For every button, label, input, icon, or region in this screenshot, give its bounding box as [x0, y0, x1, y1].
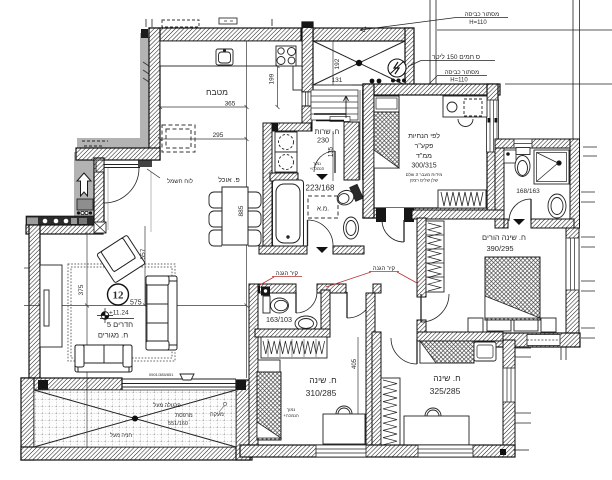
svg-text:885: 885 — [238, 205, 245, 216]
svg-text:ח. מגורים: ח. מגורים — [98, 331, 128, 340]
svg-text:551/160: 551/160 — [168, 421, 188, 427]
svg-text:מידות מעבר 3 שלם: מידות מעבר 3 שלם — [406, 172, 443, 177]
svg-text:199: 199 — [269, 73, 276, 84]
svg-text:מ.א.: מ.א. — [317, 206, 329, 213]
svg-text:נמוך: נמוך — [287, 407, 296, 412]
svg-text:מטבח: מטבח — [206, 87, 228, 97]
svg-text:223/168: 223/168 — [306, 184, 335, 193]
svg-text:300/315: 300/315 — [411, 163, 436, 170]
svg-text:+11.24: +11.24 — [109, 310, 129, 317]
svg-text:163/103: 163/103 — [266, 315, 292, 324]
svg-text:חדרים 5: חדרים 5 — [107, 320, 133, 329]
svg-text:+הנמכה: +הנמכה — [310, 166, 325, 171]
svg-text:230: 230 — [317, 136, 329, 145]
svg-text:פ. אוכל: פ. אוכל — [218, 176, 240, 184]
svg-text:לפי הנחיות: לפי הנחיות — [408, 132, 440, 140]
svg-text:192: 192 — [334, 58, 341, 69]
svg-text:295: 295 — [213, 132, 224, 139]
svg-text:מסתור כביסה: מסתור כביסה — [465, 12, 499, 18]
svg-text:פקע"ר: פקע"ר — [415, 143, 434, 150]
svg-text:365: 365 — [225, 101, 236, 108]
svg-text:ח. שינה הורים: ח. שינה הורים — [482, 233, 526, 242]
svg-text:ח. שינה: ח. שינה — [309, 375, 336, 385]
svg-text:12: 12 — [113, 290, 125, 302]
svg-text:310/285: 310/285 — [306, 388, 337, 398]
svg-text:557: 557 — [140, 248, 147, 259]
svg-text:575: 575 — [130, 300, 142, 307]
svg-text:375: 375 — [78, 284, 85, 295]
svg-text:מרפסת: מרפסת — [175, 413, 192, 419]
svg-text:ח. שינה: ח. שינה — [433, 373, 460, 383]
svg-text:H=110: H=110 — [450, 78, 468, 84]
svg-text:168/163: 168/163 — [516, 188, 540, 195]
svg-text:מסתור כביסה: מסתור כביסה — [445, 70, 479, 76]
svg-text:פרגולה מעל: פרגולה מעל — [153, 402, 181, 409]
svg-text:0501/385/851: 0501/385/851 — [149, 372, 174, 377]
svg-text:H=110: H=110 — [469, 20, 487, 26]
svg-text:390/295: 390/295 — [486, 244, 513, 253]
svg-text:לוח חשמל: לוח חשמל — [167, 177, 193, 185]
svg-text:325/285: 325/285 — [430, 386, 461, 396]
svg-text:שלן שלים רצפן: שלן שלים רצפן — [410, 178, 439, 183]
svg-text:+הנמכה: +הנמכה — [283, 413, 299, 418]
svg-text:ממ"ד: ממ"ד — [416, 153, 432, 160]
svg-text:מעקה: מעקה — [210, 412, 224, 418]
svg-text:ס חמים 150 ליטר: ס חמים 150 ליטר — [432, 53, 480, 61]
svg-text:חניה מעל: חניה מעל — [110, 432, 132, 439]
svg-text:405: 405 — [352, 358, 358, 369]
